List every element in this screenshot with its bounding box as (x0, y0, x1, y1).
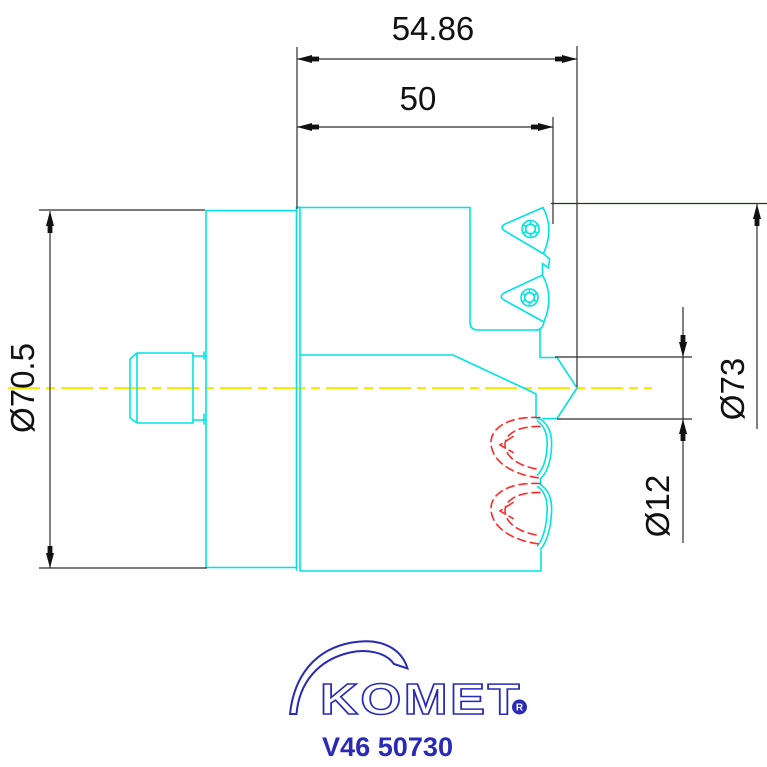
brand-wordmark: KOMET (320, 675, 522, 724)
torx-screw-icon (522, 221, 539, 238)
technical-drawing: 54.86 50 Ø70.5 Ø73 Ø12 KOMET R V46 50730 (0, 0, 767, 767)
insert-lower (501, 275, 549, 330)
hidden-insert-2-chevron (500, 503, 513, 519)
pilot-point (540, 330, 577, 419)
komet-logo: KOMET R V46 50730 (290, 641, 527, 762)
cad-drawing-canvas: 54.86 50 Ø70.5 Ø73 Ø12 KOMET R V46 50730 (0, 0, 767, 767)
dim-text-shank-diameter: Ø70.5 (4, 343, 41, 433)
registered-trademark-letter: R (516, 703, 524, 714)
torx-screw-icon (521, 289, 538, 306)
ext-lines-d12 (555, 357, 692, 419)
hidden-insert-1-chevron (500, 437, 513, 453)
hidden-insert-2-inner (505, 492, 540, 535)
part-number: V46 50730 (322, 732, 453, 762)
edge-bulge-upper (538, 420, 552, 479)
insert-notch (543, 254, 550, 276)
edge-bulge-lower (538, 479, 552, 550)
body-outline (297, 208, 541, 572)
hidden-insert-1-inner (505, 426, 540, 469)
dim-text-cutting-diameter: Ø73 (714, 358, 751, 420)
dim-text-overall-length: 54.86 (392, 10, 475, 47)
dim-text-pilot-diameter: Ø12 (639, 475, 676, 537)
dim-text-head-length: 50 (400, 80, 437, 117)
